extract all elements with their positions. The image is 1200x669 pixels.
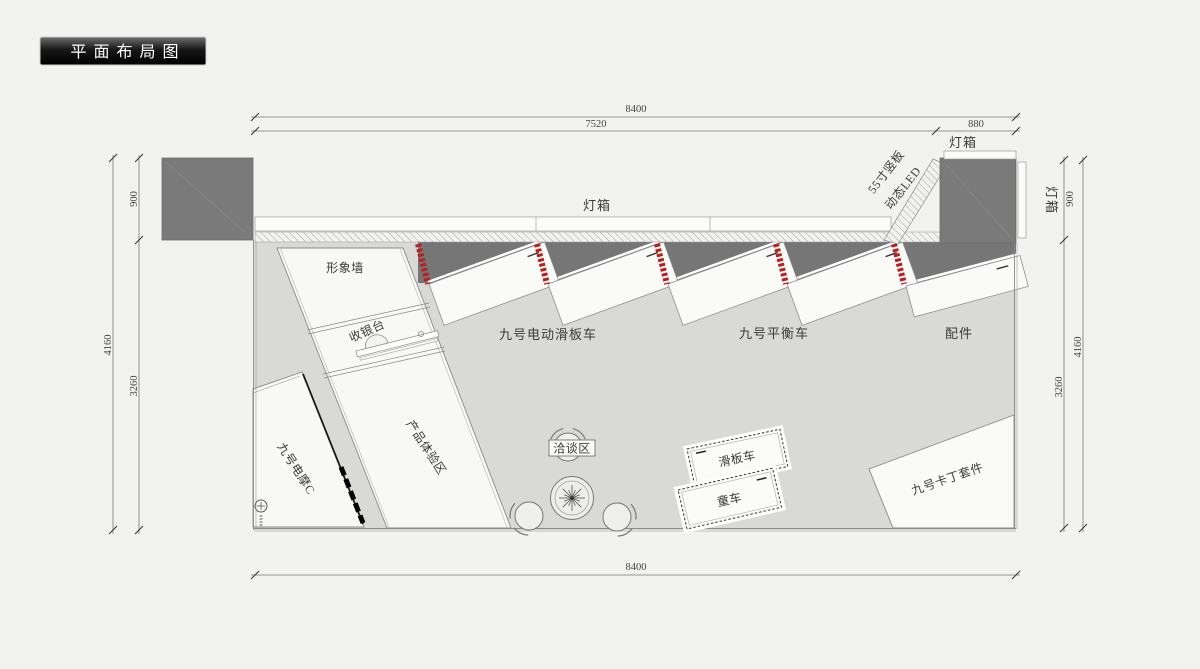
title-badge: 平面布局图: [40, 37, 206, 65]
zone-label-accessories: 配件: [945, 326, 973, 341]
page-title: 平面布局图: [70, 43, 185, 61]
floorplan-page: 平面布局图 形象墙 收银台 产品体验区 九号电摩C: [0, 0, 1200, 669]
lightbox-top-label: 灯箱: [583, 198, 611, 213]
zone-label-image-wall: 形象墙: [326, 261, 364, 275]
dim-right-total: 4160: [1073, 337, 1084, 358]
dim-left-total: 4160: [103, 335, 114, 356]
zone-label-balance: 九号平衡车: [739, 326, 809, 341]
wall-hatch-strip: [255, 232, 940, 242]
lightbox-top-right: [944, 151, 1016, 159]
lightbox-corner-label: 灯箱: [949, 135, 977, 150]
dim-top-right: 880: [968, 119, 984, 130]
chair: [603, 503, 631, 531]
entry-column-right: [940, 158, 1016, 243]
dim-top-total: 8400: [626, 104, 647, 115]
dim-bottom-total: 8400: [626, 562, 647, 573]
chair: [515, 502, 543, 530]
zone-label-escooter: 九号电动滑板车: [499, 327, 597, 342]
dim-right-top: 900: [1065, 191, 1076, 207]
table-plant-icon: [559, 485, 585, 511]
entry-column-left: [162, 158, 253, 240]
dim-top-main: 7520: [586, 119, 607, 130]
lightbox-side-label: 灯箱: [1044, 186, 1059, 214]
dim-left-top: 900: [129, 191, 140, 207]
dim-right-bottom: 3260: [1054, 377, 1065, 398]
dim-left-bottom: 3260: [129, 376, 140, 397]
floorplan-drawing: 平面布局图 形象墙 收银台 产品体验区 九号电摩C: [0, 0, 1200, 669]
lightbox-right-side: [1018, 162, 1026, 238]
zone-label-meeting: 洽谈区: [553, 442, 591, 456]
lightbox-strip: [255, 217, 891, 231]
